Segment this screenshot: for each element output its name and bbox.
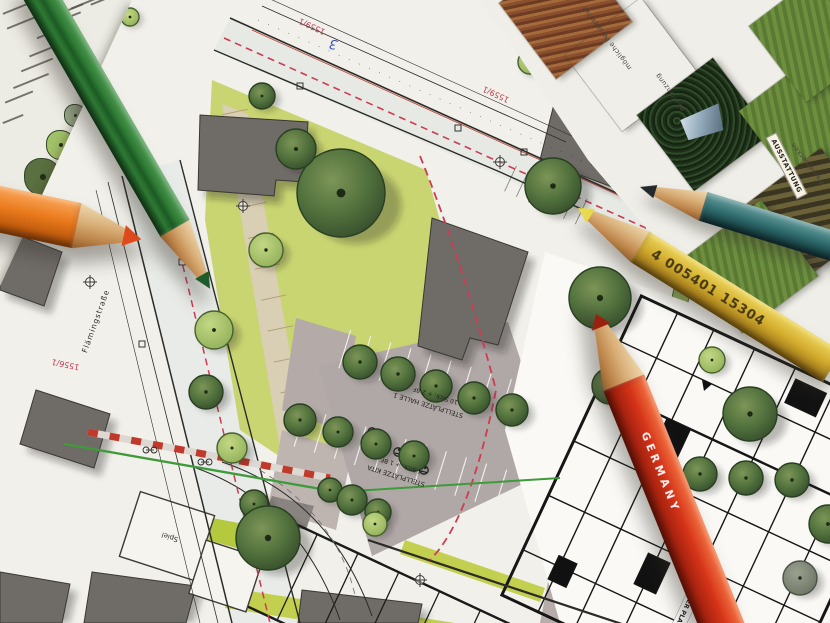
tree: [284, 404, 316, 436]
tree: [276, 129, 316, 169]
tree: [217, 433, 247, 463]
tree: [189, 375, 223, 409]
tree: [525, 158, 581, 214]
tree: [699, 347, 725, 373]
tree: [361, 429, 391, 459]
tree: [723, 387, 777, 441]
tree: [458, 382, 490, 414]
desk-photo-scene: 1559/1 1559/1 1556/1 1706/20 3 Flämingst…: [0, 0, 830, 623]
tree: [249, 233, 283, 267]
tree: [195, 311, 233, 349]
tree: [381, 357, 415, 391]
tree: [121, 8, 139, 26]
tree: [337, 485, 367, 515]
tree: [343, 345, 377, 379]
tree: [783, 561, 817, 595]
orange-pencil-wood: [72, 203, 129, 258]
tree: [236, 506, 300, 570]
tree: [496, 394, 528, 426]
tree: [249, 83, 275, 109]
tree: [323, 417, 353, 447]
tree: [775, 463, 809, 497]
tree: [729, 461, 763, 495]
tree: [363, 512, 387, 536]
